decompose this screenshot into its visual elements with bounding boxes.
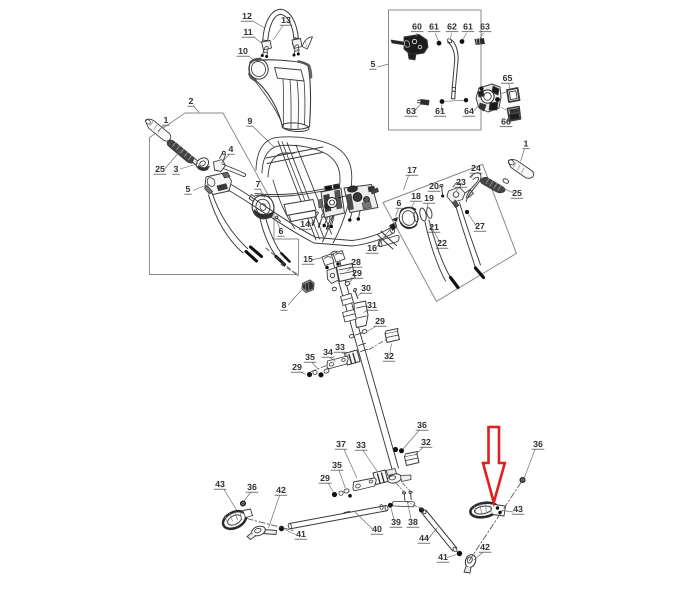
svg-text:8: 8	[282, 300, 287, 310]
svg-text:42: 42	[276, 485, 286, 495]
svg-text:62: 62	[447, 22, 457, 32]
svg-text:17: 17	[407, 165, 417, 175]
svg-text:19: 19	[424, 193, 434, 203]
svg-text:32: 32	[384, 351, 394, 361]
svg-text:65: 65	[503, 73, 513, 83]
svg-text:29: 29	[352, 268, 362, 278]
svg-text:29: 29	[320, 473, 330, 483]
svg-text:35: 35	[305, 352, 315, 362]
svg-text:10: 10	[238, 46, 248, 56]
svg-text:33: 33	[335, 342, 345, 352]
svg-text:41: 41	[296, 529, 306, 539]
svg-text:34: 34	[323, 347, 333, 357]
svg-text:40: 40	[372, 524, 382, 534]
svg-text:66: 66	[501, 117, 511, 127]
svg-text:25: 25	[155, 164, 165, 174]
svg-text:61: 61	[435, 106, 445, 116]
svg-text:28: 28	[351, 257, 361, 267]
svg-text:41: 41	[438, 552, 448, 562]
svg-text:23: 23	[456, 177, 466, 187]
svg-text:33: 33	[356, 440, 366, 450]
svg-text:3: 3	[174, 164, 179, 174]
svg-text:61: 61	[463, 22, 473, 32]
svg-text:11: 11	[243, 27, 252, 37]
svg-text:24: 24	[471, 163, 481, 173]
svg-text:9: 9	[248, 116, 253, 126]
svg-text:15: 15	[303, 254, 313, 264]
svg-text:5: 5	[371, 59, 376, 69]
svg-text:6: 6	[397, 198, 402, 208]
svg-text:36: 36	[247, 482, 257, 492]
svg-text:4: 4	[229, 144, 234, 154]
svg-text:30: 30	[361, 283, 371, 293]
svg-text:29: 29	[292, 362, 302, 372]
svg-text:37: 37	[336, 439, 346, 449]
svg-text:25: 25	[512, 188, 522, 198]
svg-text:43: 43	[215, 479, 225, 489]
svg-text:12: 12	[242, 11, 252, 21]
svg-text:36: 36	[533, 439, 543, 449]
svg-text:2: 2	[189, 96, 194, 106]
svg-text:61: 61	[429, 22, 439, 32]
svg-text:18: 18	[411, 191, 421, 201]
svg-text:13: 13	[281, 15, 291, 25]
svg-text:60: 60	[412, 22, 422, 32]
svg-text:14: 14	[300, 219, 310, 229]
svg-text:7: 7	[256, 179, 261, 189]
svg-text:36: 36	[417, 420, 427, 430]
svg-text:5: 5	[186, 184, 191, 194]
svg-text:21: 21	[429, 222, 439, 232]
svg-text:29: 29	[375, 316, 385, 326]
svg-text:42: 42	[480, 542, 490, 552]
svg-text:22: 22	[437, 238, 447, 248]
svg-text:20: 20	[429, 181, 439, 191]
svg-text:31: 31	[367, 300, 377, 310]
svg-text:64: 64	[464, 106, 474, 116]
svg-text:35: 35	[332, 460, 342, 470]
svg-text:38: 38	[408, 517, 418, 527]
svg-text:44: 44	[419, 533, 429, 543]
svg-text:16: 16	[367, 243, 377, 253]
svg-text:43: 43	[513, 504, 523, 514]
svg-text:27: 27	[475, 221, 485, 231]
svg-text:39: 39	[391, 517, 401, 527]
svg-text:1: 1	[164, 115, 169, 125]
svg-text:32: 32	[421, 437, 431, 447]
svg-text:63: 63	[480, 22, 490, 32]
svg-text:1: 1	[524, 139, 529, 149]
